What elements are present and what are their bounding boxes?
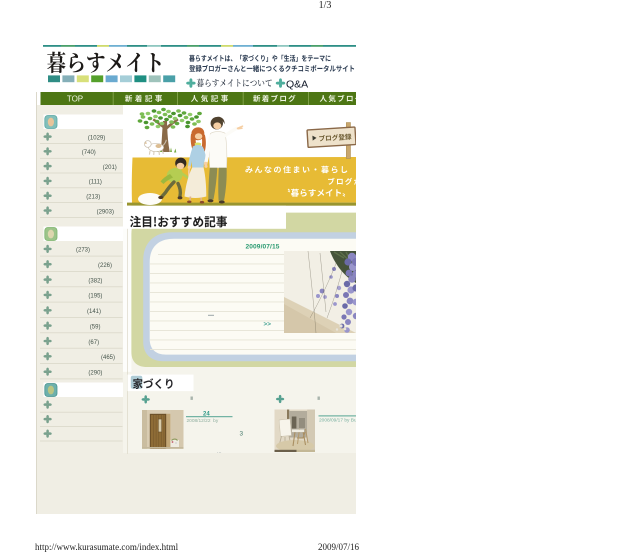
svg-text:(111): (111) <box>89 180 102 186</box>
svg-text:2009/07/15: 2009/07/15 <box>246 244 280 251</box>
svg-text:2008/09/17 by Bu: 2008/09/17 by Bu <box>319 417 356 423</box>
svg-text:(213): (213) <box>86 195 100 201</box>
svg-text:(141): (141) <box>87 309 101 315</box>
svg-text:...: ... <box>217 449 222 455</box>
svg-text:(465): (465) <box>101 355 115 361</box>
svg-text:(1029): (1029) <box>88 135 105 141</box>
svg-text:3: 3 <box>240 431 244 438</box>
svg-text:(201): (201) <box>103 165 117 171</box>
svg-text:(740): (740) <box>82 150 96 156</box>
svg-text:(2903): (2903) <box>97 209 114 215</box>
svg-text:(382): (382) <box>88 278 102 284</box>
svg-text:2008/12/22 by: 2008/12/22 by <box>187 418 219 424</box>
svg-text:(226): (226) <box>98 263 112 269</box>
svg-text:(195): (195) <box>88 294 102 300</box>
svg-text:>>: >> <box>264 321 272 328</box>
svg-text:(290): (290) <box>88 371 102 377</box>
svg-text:(59): (59) <box>90 324 101 330</box>
svg-text:(67): (67) <box>88 340 99 346</box>
svg-text:TOP: TOP <box>67 95 83 104</box>
svg-text:Q&A: Q&A <box>286 78 308 90</box>
svg-text:(273): (273) <box>76 248 90 254</box>
